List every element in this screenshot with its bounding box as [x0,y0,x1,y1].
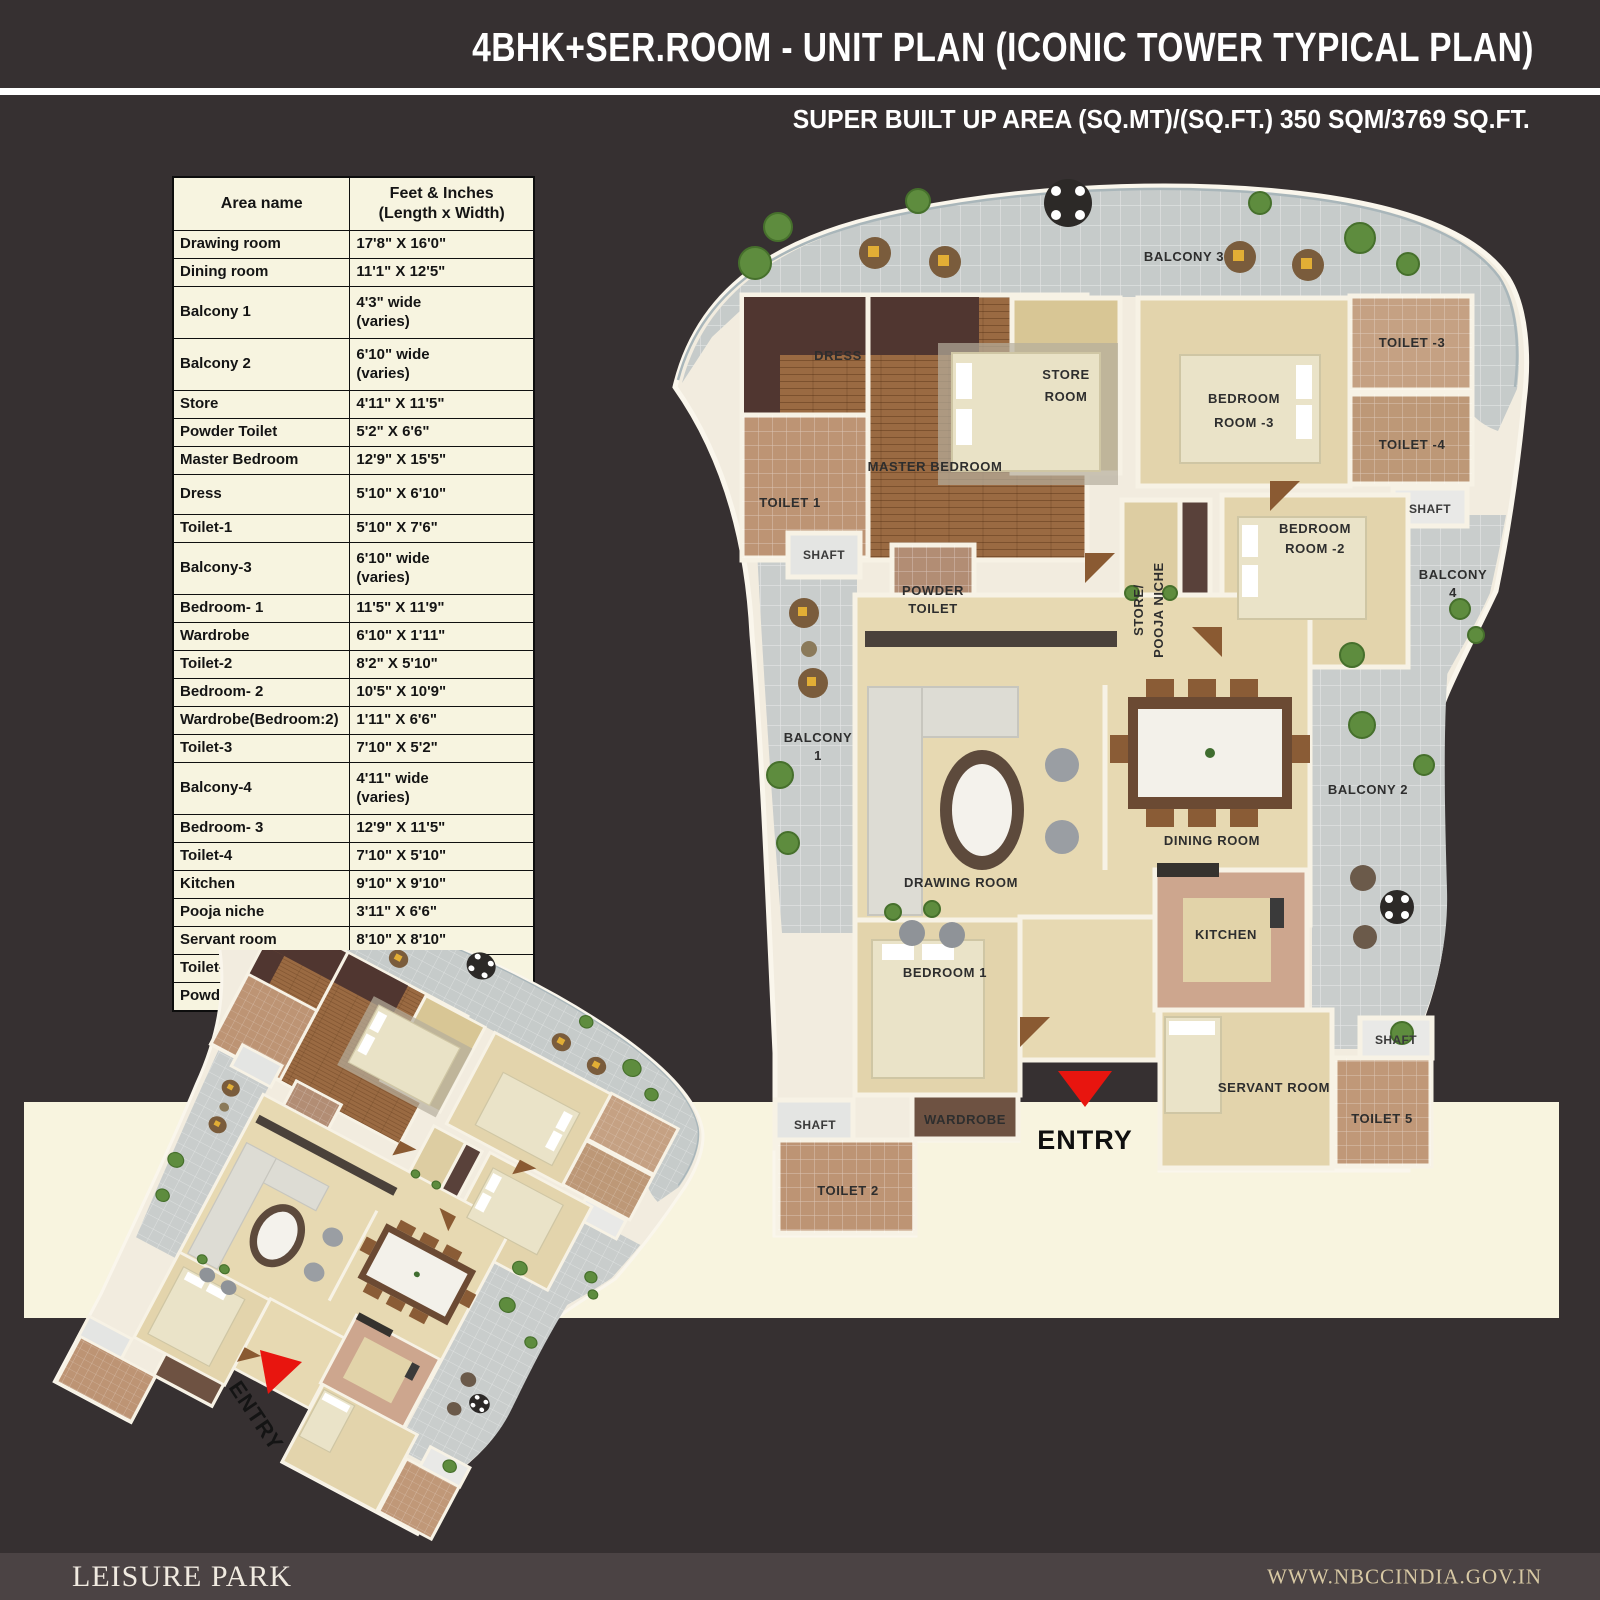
project-name: LEISURE PARK [72,1560,292,1594]
label-store-pooja: STORE/ [1131,584,1146,636]
iso-floor-plan-3d: ENTRY [40,950,740,1590]
label-powder-toilet: POWDER [902,583,964,598]
svg-text:ROOM -2: ROOM -2 [1285,541,1345,556]
label-toilet3: TOILET -3 [1379,335,1446,350]
table-row: Bedroom- 312'9" X 11'5" [173,815,534,843]
label-dress: DRESS [814,348,862,363]
table-row: Store4'11" X 11'5" [173,391,534,419]
room-dimensions-table: Area name Feet & Inches (Length x Width)… [172,176,535,1012]
built-up-area-subtitle: SUPER BUILT UP AREA (SQ.MT)/(SQ.FT.) 350… [793,104,1530,135]
label-master-bedroom: MASTER BEDROOM [868,459,1003,474]
header-divider-line [0,88,1600,95]
label-balcony2: BALCONY 2 [1328,782,1408,797]
svg-text:ROOM -3: ROOM -3 [1214,415,1274,430]
entry-arrow-icon [1058,1071,1112,1107]
entry-label: ENTRY [1037,1125,1133,1155]
label-balcony1: BALCONY [784,730,852,745]
label-toilet2: TOILET 2 [817,1183,879,1198]
svg-text:1: 1 [814,748,822,763]
table-header-row: Area name Feet & Inches (Length x Width) [173,177,534,231]
table-row: Wardrobe(Bedroom:2)1'11" X 6'6" [173,707,534,735]
svg-text:ROOM: ROOM [1045,389,1088,404]
brochure-page: 4BHK+SER.ROOM - UNIT PLAN (ICONIC TOWER … [0,0,1600,1600]
label-shaft-right: SHAFT [1409,502,1451,516]
table-row: Toilet-37'10" X 5'2" [173,735,534,763]
label-bedroom2: BEDROOM [1279,521,1351,536]
label-bedroom1: BEDROOM 1 [903,965,987,980]
table-row: Balcony-44'11" wide (varies) [173,763,534,815]
label-servant-room: SERVANT ROOM [1218,1080,1330,1095]
footer-bar: LEISURE PARK WWW.NBCCINDIA.GOV.IN [0,1553,1600,1600]
table-row: Balcony 26'10" wide (varies) [173,339,534,391]
area-name-header: Area name [173,177,350,231]
table-row: Dining room11'1" X 12'5" [173,259,534,287]
table-row: Pooja niche3'11" X 6'6" [173,899,534,927]
svg-text:POOJA NICHE: POOJA NICHE [1151,562,1166,658]
table-row: Balcony 14'3" wide (varies) [173,287,534,339]
label-balcony4: BALCONY [1419,567,1487,582]
label-store-room: STORE [1042,367,1090,382]
svg-text:TOILET: TOILET [908,601,958,616]
label-toilet4: TOILET -4 [1379,437,1446,452]
feet-inches-header: Feet & Inches (Length x Width) [350,177,534,231]
page-title: 4BHK+SER.ROOM - UNIT PLAN (ICONIC TOWER … [472,24,1534,71]
label-shaft-bottom-right: SHAFT [1375,1033,1417,1047]
label-bedroom3: BEDROOM [1208,391,1280,406]
table-row: Dress5'10" X 6'10" [173,475,534,515]
label-shaft-left: SHAFT [803,548,845,562]
label-drawing-room: DRAWING ROOM [904,875,1018,890]
table-row: Bedroom- 111'5" X 11'9" [173,595,534,623]
unit-floor-plan: BALCONY 3 DRESS MASTER BEDROOM STORE ROO… [660,165,1530,1255]
table-row: Wardrobe6'10" X 1'11" [173,623,534,651]
table-row: Toilet-28'2" X 5'10" [173,651,534,679]
label-kitchen: KITCHEN [1195,927,1257,942]
table-row: Master Bedroom12'9" X 15'5" [173,447,534,475]
table-row: Toilet-47'10" X 5'10" [173,843,534,871]
table-row: Bedroom- 210'5" X 10'9" [173,679,534,707]
table-row: Balcony-36'10" wide (varies) [173,543,534,595]
label-dining-room: DINING ROOM [1164,833,1260,848]
table-row: Toilet-15'10" X 7'6" [173,515,534,543]
label-shaft-bottom-left: SHAFT [794,1118,836,1132]
label-wardrobe: WARDROBE [924,1112,1006,1127]
svg-text:4: 4 [1449,585,1457,600]
table-row: Powder Toilet5'2" X 6'6" [173,419,534,447]
label-toilet5: TOILET 5 [1351,1111,1413,1126]
table-row: Kitchen9'10" X 9'10" [173,871,534,899]
website-url: WWW.NBCCINDIA.GOV.IN [1267,1564,1542,1589]
label-balcony3: BALCONY 3 [1144,249,1224,264]
label-toilet1: TOILET 1 [759,495,821,510]
table-row: Drawing room17'8" X 16'0" [173,231,534,259]
